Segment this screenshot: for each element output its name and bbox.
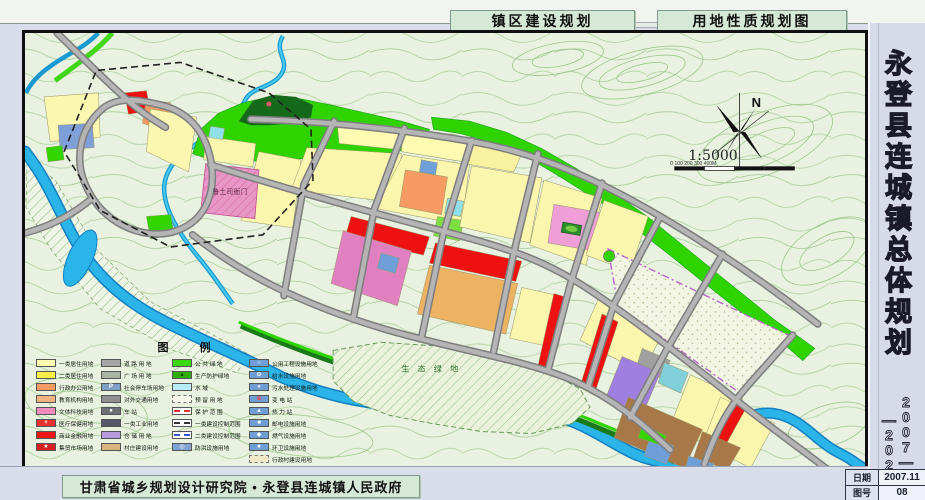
legend-item: 对外交通用地 xyxy=(101,395,166,403)
legend-label: 行政办公用地 xyxy=(59,383,93,392)
legend-swatch xyxy=(172,407,192,415)
tab-connector xyxy=(633,22,659,28)
legend-label: 预 留 用 地 xyxy=(195,395,223,404)
legend-item: ●车 站 xyxy=(101,407,166,415)
legend-swatch xyxy=(101,443,121,451)
temple-marker xyxy=(266,101,271,106)
legend-swatch xyxy=(172,395,192,403)
legend-label: 社会停车场用地 xyxy=(124,383,164,392)
vertical-char: 2 xyxy=(885,428,893,443)
legend-item: 行政办公用地 xyxy=(36,383,95,391)
legend-item: ★集贸市场用地 xyxy=(36,443,95,451)
legend-swatch xyxy=(172,383,192,391)
legend-column-2: 道 路 用 地广 场 用 地P社会停车场用地对外交通用地●车 站一类工业用地仓 … xyxy=(101,359,166,463)
legend-swatch: ★ xyxy=(249,443,269,451)
legend-item: 预 留 用 地 xyxy=(172,395,243,403)
legend-swatch xyxy=(36,395,56,403)
vertical-char: 0 xyxy=(902,425,910,440)
plan-year-start: 2007— xyxy=(899,395,913,470)
vertical-char: 县 xyxy=(885,111,912,142)
legend-swatch xyxy=(101,371,121,379)
date-row: 日期 2007.11 xyxy=(846,470,925,486)
legend-item: 二类居住用地 xyxy=(36,371,95,379)
legend-label: 公 共 绿 地 xyxy=(195,359,223,368)
legend-label: 水 域 xyxy=(195,383,208,392)
legend-swatch xyxy=(172,419,192,427)
legend-item: ●污水处理设施用地 xyxy=(249,383,320,391)
legend-item: P社会停车场用地 xyxy=(101,383,166,391)
legend-item: 商业金融用地 xyxy=(36,431,95,439)
legend-label: 车 站 xyxy=(124,407,137,416)
vertical-char: — xyxy=(882,413,896,428)
legend-label: 变 电 站 xyxy=(272,395,292,404)
legend-label: 二类居住用地 xyxy=(59,371,93,380)
vertical-char: 永 xyxy=(885,49,912,80)
vertical-char: 划 xyxy=(885,328,912,359)
legend-item: 一类居住用地 xyxy=(36,359,95,367)
legend-item: 一类工业用地 xyxy=(101,419,166,427)
legend-column-4: ○公用工程设施用地⊙给水设施用地●污水处理设施用地⊕变 电 站▲热 力 站■邮电… xyxy=(249,359,320,463)
sheet-row: 图号 08 xyxy=(846,486,925,500)
legend-swatch xyxy=(101,431,121,439)
plan-title-vertical: 永登县连城镇总体规划 xyxy=(870,49,925,359)
legend-item: 保 护 范 围 xyxy=(172,407,243,415)
legend-label: 道 路 用 地 xyxy=(124,359,152,368)
legend-item: 二类建设控制范围 xyxy=(172,431,243,439)
legend-swatch: ■ xyxy=(249,419,269,427)
roundabout-green xyxy=(604,251,615,262)
eco-green-label: 生 态 绿 地 xyxy=(401,364,461,374)
legend-label: 燃气设施用地 xyxy=(272,431,306,440)
legend-item: ⊕变 电 站 xyxy=(249,395,320,403)
legend-label: 邮电设施用地 xyxy=(272,419,306,428)
legend-item: ○公用工程设施用地 xyxy=(249,359,320,367)
vertical-char: 连 xyxy=(885,142,912,173)
legend-label: 一类居住用地 xyxy=(59,359,93,368)
sheet-value: 08 xyxy=(879,486,925,500)
legend-swatch xyxy=(36,383,56,391)
legend-swatch: ⊕ xyxy=(249,395,269,403)
legend-swatch xyxy=(101,359,121,367)
legend: 图 例 一类居住用地二类居住用地行政办公用地教育机构用地文体科技用地+医疗保健用… xyxy=(36,339,336,463)
legend-swatch xyxy=(36,371,56,379)
legend-swatch: ● xyxy=(249,383,269,391)
legend-line xyxy=(174,434,190,436)
date-value: 2007.11 xyxy=(879,470,925,485)
title-block: 日期 2007.11 图号 08 xyxy=(845,469,925,500)
legend-swatch: ○ xyxy=(249,359,269,367)
legend-label: 公用工程设施用地 xyxy=(272,359,318,368)
legend-swatch xyxy=(101,419,121,427)
legend-swatch: ▲ xyxy=(249,407,269,415)
legend-item: ◎防洪设施用地 xyxy=(172,443,243,451)
legend-item: ▲热 力 站 xyxy=(249,407,320,415)
legend-swatch: ◆ xyxy=(249,431,269,439)
legend-item: 广 场 用 地 xyxy=(101,371,166,379)
map-frame: 生 态 绿 地 xyxy=(22,30,868,469)
legend-swatch xyxy=(101,395,121,403)
legend-line xyxy=(174,422,190,424)
legend-column-3: 公 共 绿 地▲生产防护绿地水 域预 留 用 地保 护 范 围一类建设控制范围二… xyxy=(172,359,243,463)
legend-label: 环卫设施用地 xyxy=(272,443,306,452)
legend-item: 行政村建设用地 xyxy=(249,455,320,463)
legend-swatch: ★ xyxy=(36,443,56,451)
legend-swatch: ⊙ xyxy=(249,371,269,379)
legend-title: 图 例 xyxy=(96,339,286,355)
date-label: 日期 xyxy=(846,470,879,485)
legend-label: 集贸市场用地 xyxy=(59,443,93,452)
legend-label: 给水设施用地 xyxy=(272,371,306,380)
vertical-char: 2 xyxy=(902,395,910,410)
legend-swatch: P xyxy=(101,383,121,391)
vertical-char: — xyxy=(899,455,913,470)
title-tab-plan: 镇区建设规划 xyxy=(450,10,635,31)
vertical-char: 体 xyxy=(885,266,912,297)
vertical-char: 规 xyxy=(885,297,912,328)
legend-columns: 一类居住用地二类居住用地行政办公用地教育机构用地文体科技用地+医疗保健用地商业金… xyxy=(36,359,336,463)
legend-item: 文体科技用地 xyxy=(36,407,95,415)
legend-item: 道 路 用 地 xyxy=(101,359,166,367)
legend-swatch xyxy=(36,407,56,415)
legend-label: 村庄建设用地 xyxy=(124,443,158,452)
legend-swatch xyxy=(249,455,269,463)
vertical-char: 城 xyxy=(885,173,912,204)
legend-label: 保 护 范 围 xyxy=(195,407,223,416)
legend-item: ■邮电设施用地 xyxy=(249,419,320,427)
legend-swatch: + xyxy=(36,419,56,427)
legend-label: 二类建设控制范围 xyxy=(195,431,241,440)
sheet-label: 图号 xyxy=(846,486,879,500)
legend-label: 生产防护绿地 xyxy=(195,371,229,380)
legend-label: 污水处理设施用地 xyxy=(272,383,318,392)
legend-column-1: 一类居住用地二类居住用地行政办公用地教育机构用地文体科技用地+医疗保健用地商业金… xyxy=(36,359,95,463)
planning-sheet: 镇区建设规划 用地性质规划图 xyxy=(0,0,925,500)
legend-item: ▲生产防护绿地 xyxy=(172,371,243,379)
legend-line xyxy=(174,410,190,412)
vertical-char: 总 xyxy=(885,235,912,266)
legend-swatch: ◎ xyxy=(172,443,192,451)
legend-item: ★环卫设施用地 xyxy=(249,443,320,451)
vertical-char: 7 xyxy=(902,440,910,455)
legend-item: 公 共 绿 地 xyxy=(172,359,243,367)
legend-label: 广 场 用 地 xyxy=(124,371,152,380)
scale-tick-labels: 0 100 200 300 400M xyxy=(670,161,716,167)
legend-label: 一类工业用地 xyxy=(124,419,158,428)
legend-label: 热 力 站 xyxy=(272,407,292,416)
sidebar: 永登县连城镇总体规划 2007— —2020 xyxy=(868,23,925,500)
legend-item: 村庄建设用地 xyxy=(101,443,166,451)
credit-box: 甘肃省城乡规划设计研究院 • 永登县连城镇人民政府 xyxy=(62,475,420,498)
legend-label: 一类建设控制范围 xyxy=(195,419,241,428)
legend-item: 水 域 xyxy=(172,383,243,391)
vertical-char: 0 xyxy=(902,410,910,425)
legend-label: 行政村建设用地 xyxy=(272,455,312,464)
legend-swatch: ▲ xyxy=(172,371,192,379)
legend-swatch: ● xyxy=(101,407,121,415)
legend-label: 教育机构用地 xyxy=(59,395,93,404)
legend-label: 防洪设施用地 xyxy=(195,443,229,452)
legend-swatch xyxy=(36,359,56,367)
title-tab-landuse: 用地性质规划图 xyxy=(657,10,847,31)
vertical-char: 镇 xyxy=(885,204,912,235)
legend-label: 医疗保健用地 xyxy=(59,419,93,428)
legend-item: ◆燃气设施用地 xyxy=(249,431,320,439)
vertical-char: 登 xyxy=(885,80,912,111)
legend-label: 商业金融用地 xyxy=(59,431,93,440)
legend-item: 仓 储 用 地 xyxy=(101,431,166,439)
legend-swatch xyxy=(172,359,192,367)
legend-item: ⊙给水设施用地 xyxy=(249,371,320,379)
legend-item: 一类建设控制范围 xyxy=(172,419,243,427)
legend-label: 仓 储 用 地 xyxy=(124,431,152,440)
historic-site-label: 鲁土司衙门 xyxy=(213,187,248,196)
legend-item: +医疗保健用地 xyxy=(36,419,95,427)
compass-n-label: N xyxy=(752,95,761,110)
legend-item: 教育机构用地 xyxy=(36,395,95,403)
vertical-char: 0 xyxy=(885,443,893,458)
legend-label: 对外交通用地 xyxy=(124,395,158,404)
legend-label: 文体科技用地 xyxy=(59,407,93,416)
legend-swatch xyxy=(36,431,56,439)
legend-swatch xyxy=(172,431,192,439)
